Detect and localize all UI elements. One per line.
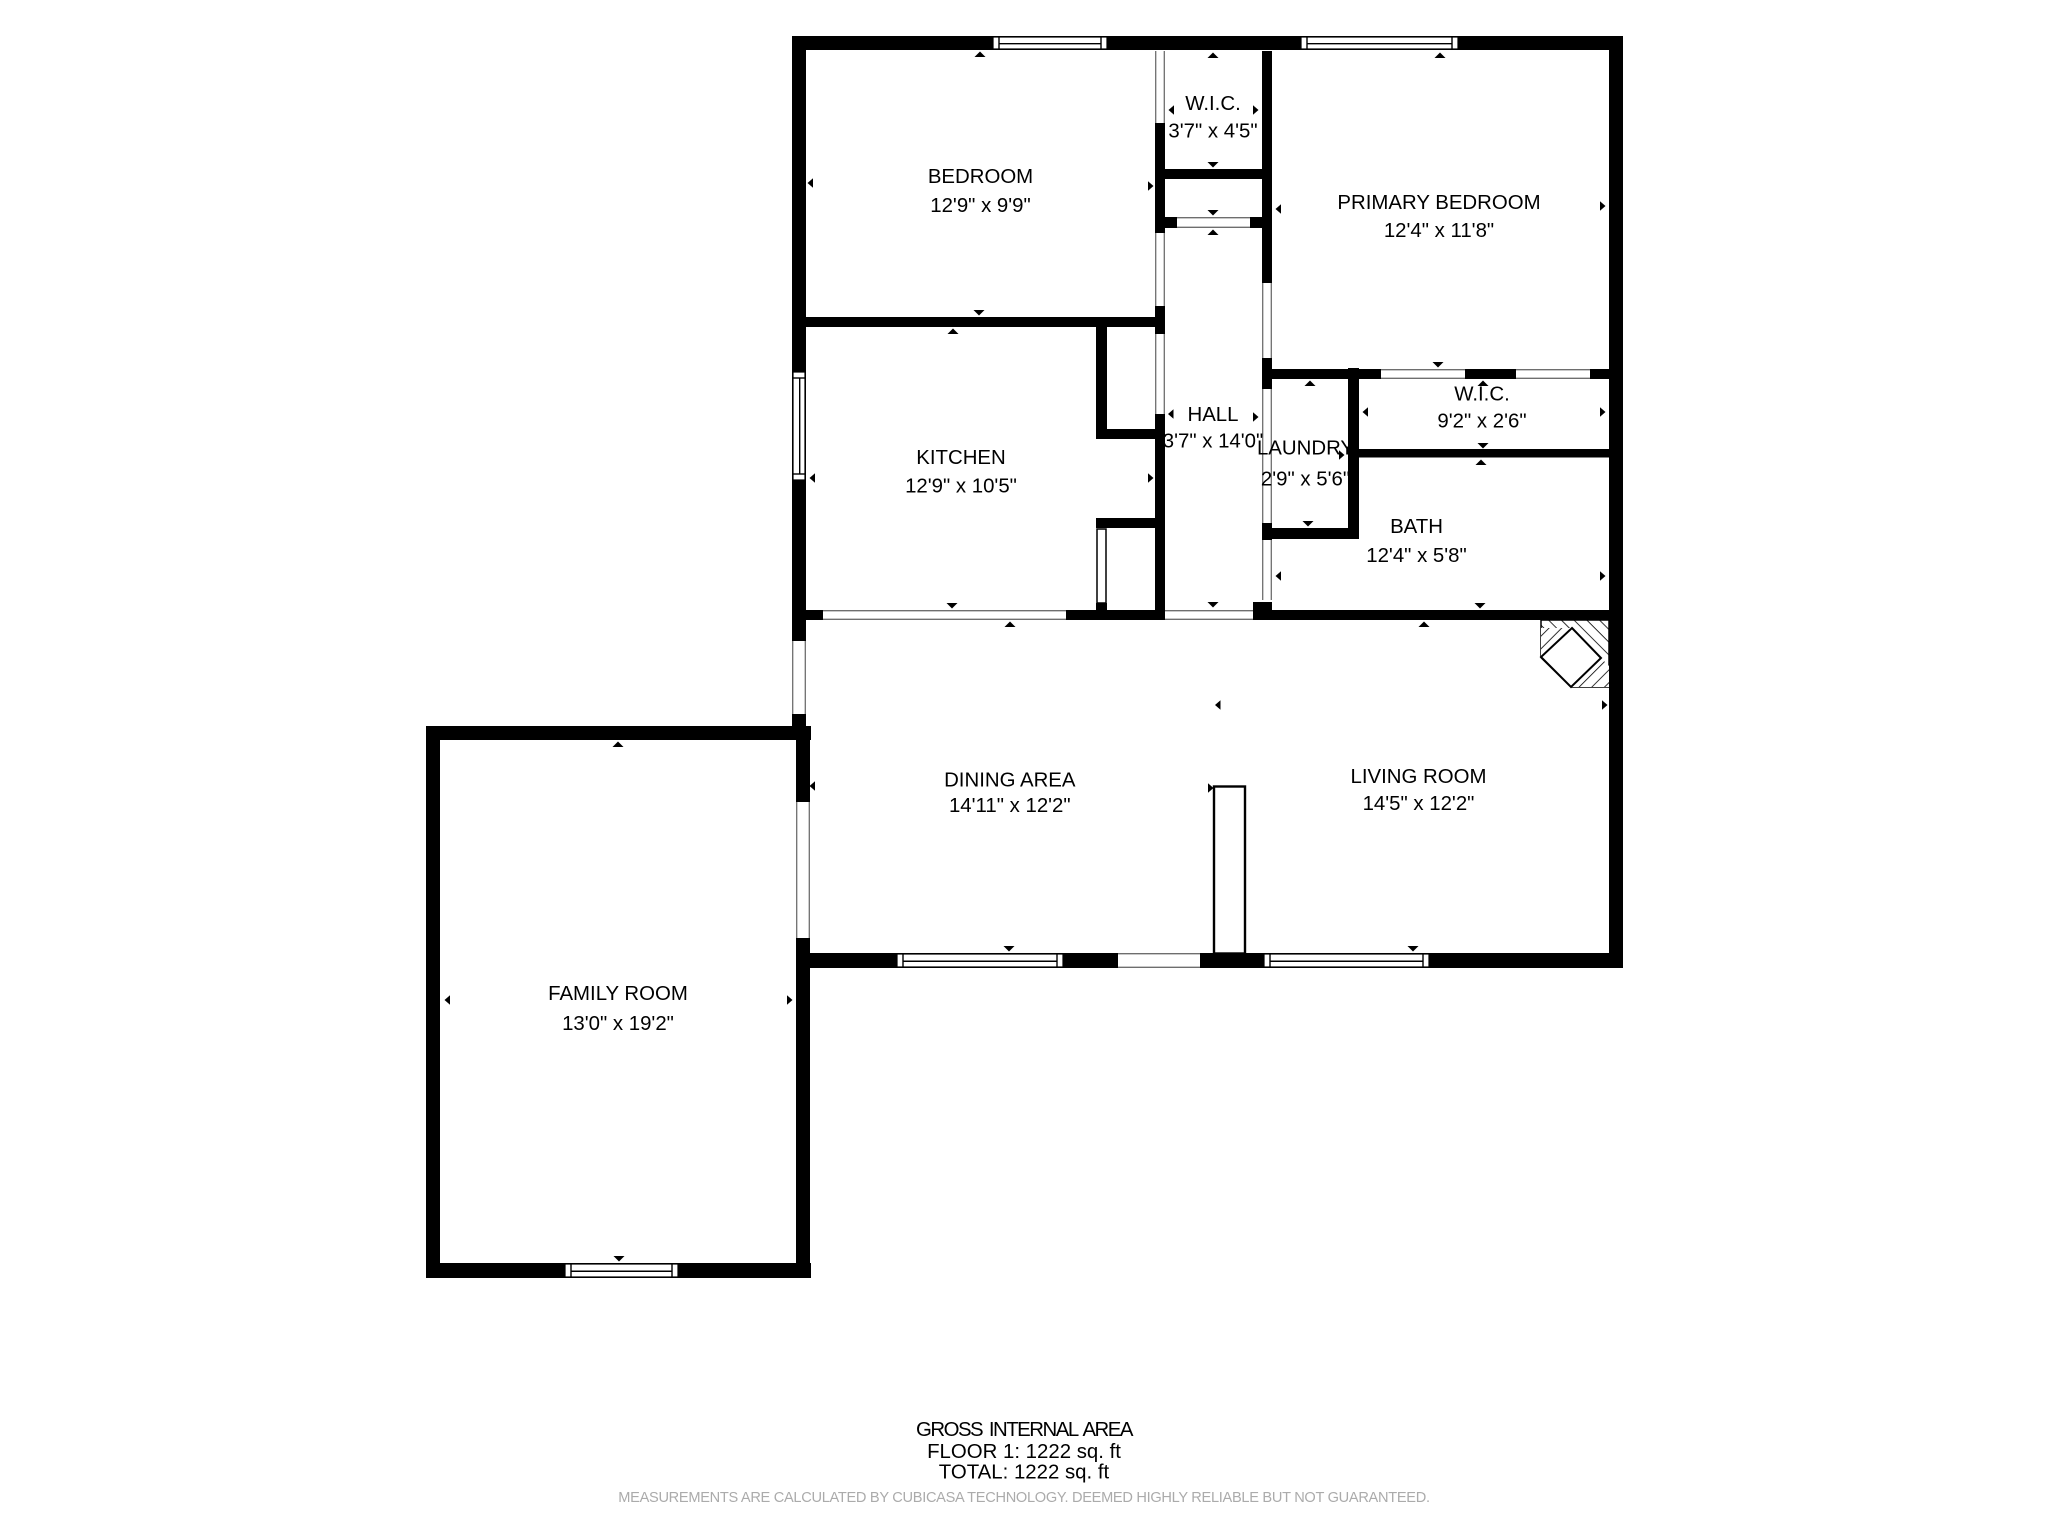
svg-text:13'0" x 19'2": 13'0" x 19'2": [562, 1013, 674, 1035]
svg-text:FLOOR 1: 1222 sq. ft: FLOOR 1: 1222 sq. ft: [927, 1441, 1121, 1463]
svg-text:12'9" x 9'9": 12'9" x 9'9": [930, 195, 1031, 217]
svg-text:12'4" x 5'8": 12'4" x 5'8": [1366, 545, 1467, 567]
svg-text:W.I.C.: W.I.C.: [1454, 384, 1510, 406]
svg-text:GROSS INTERNAL AREA: GROSS INTERNAL AREA: [916, 1419, 1134, 1441]
svg-text:12'9" x 10'5": 12'9" x 10'5": [905, 476, 1017, 498]
svg-text:LIVING ROOM: LIVING ROOM: [1351, 766, 1487, 788]
svg-text:2'9" x 5'6": 2'9" x 5'6": [1261, 469, 1350, 491]
svg-text:3'7" x 14'0": 3'7" x 14'0": [1163, 431, 1264, 453]
svg-text:14'5" x 12'2": 14'5" x 12'2": [1363, 793, 1475, 815]
svg-text:W.I.C.: W.I.C.: [1185, 93, 1241, 115]
svg-text:FAMILY ROOM: FAMILY ROOM: [548, 983, 688, 1005]
svg-text:BATH: BATH: [1390, 516, 1443, 538]
svg-text:3'7" x 4'5": 3'7" x 4'5": [1168, 121, 1257, 143]
svg-text:TOTAL: 1222 sq. ft: TOTAL: 1222 sq. ft: [939, 1462, 1110, 1484]
svg-text:BEDROOM: BEDROOM: [928, 166, 1033, 188]
svg-text:12'4" x 11'8": 12'4" x 11'8": [1384, 220, 1494, 242]
svg-text:9'2" x 2'6": 9'2" x 2'6": [1437, 411, 1526, 433]
svg-text:HALL: HALL: [1187, 404, 1238, 426]
svg-text:14'11" x 12'2": 14'11" x 12'2": [949, 795, 1071, 817]
svg-text:PRIMARY BEDROOM: PRIMARY BEDROOM: [1337, 192, 1540, 214]
svg-text:MEASUREMENTS ARE CALCULATED BY: MEASUREMENTS ARE CALCULATED BY CUBICASA …: [618, 1490, 1429, 1506]
svg-text:DINING AREA: DINING AREA: [944, 770, 1076, 792]
svg-text:KITCHEN: KITCHEN: [916, 447, 1006, 469]
svg-text:LAUNDRY: LAUNDRY: [1257, 438, 1354, 460]
